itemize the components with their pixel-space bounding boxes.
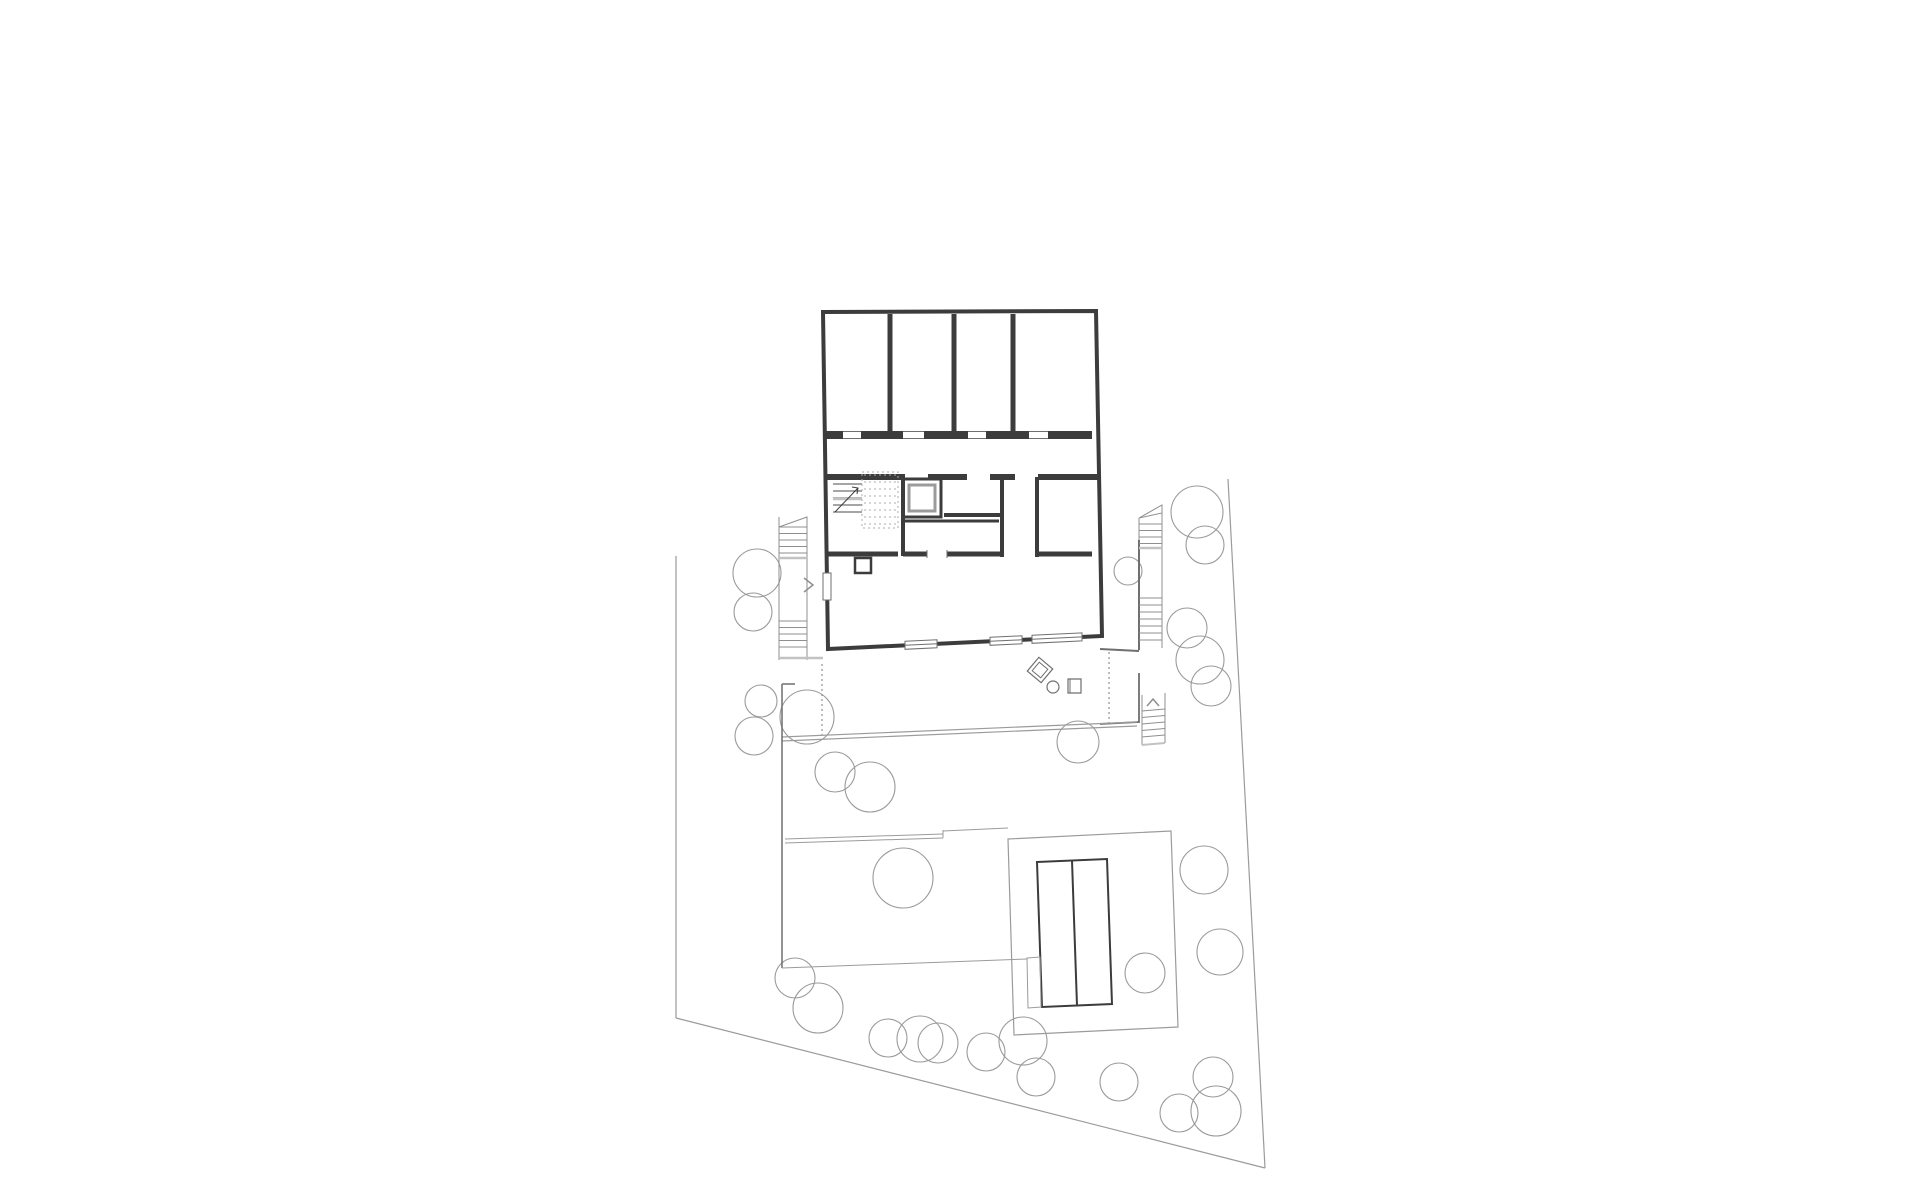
entry-direction-arrow	[804, 578, 813, 592]
tree-30	[1193, 1057, 1233, 1097]
garden-path-edge-3	[943, 828, 1008, 831]
column	[855, 558, 871, 573]
tree-4	[735, 717, 773, 755]
tree-8	[873, 848, 933, 908]
east-lower-stair-treads-3	[1142, 722, 1165, 724]
tree-7	[845, 762, 895, 812]
terrace-chair-round	[1047, 681, 1059, 693]
tree-11	[1171, 486, 1223, 538]
tree-29	[1191, 1086, 1241, 1136]
tree-17	[1197, 929, 1243, 975]
tree-2	[734, 593, 772, 631]
tree-20	[793, 983, 843, 1033]
terrace-edge-inner	[782, 726, 1137, 741]
east-lower-stair-treads-4	[1142, 729, 1165, 731]
tree-26	[1017, 1058, 1055, 1096]
site-plan-page	[0, 0, 1920, 1200]
tree-27	[1100, 1063, 1138, 1101]
east-lower-stair-treads-2	[1142, 716, 1165, 718]
tree-28	[1160, 1094, 1198, 1132]
east-lower-stair-treads-5	[1142, 735, 1165, 737]
east-retaining-wall-cap	[1100, 649, 1139, 651]
east-lower-stair-treads-1	[1142, 709, 1165, 711]
tree-1	[733, 549, 781, 597]
east-lower-stair-band	[1142, 743, 1165, 745]
entrance-door	[823, 573, 831, 600]
tree-19	[775, 958, 815, 998]
plot-boundary-right	[1228, 479, 1265, 1168]
architectural-floor-plan-drawing	[0, 0, 1920, 1200]
terrace-table-inner	[1032, 662, 1048, 678]
tree-16	[1180, 846, 1228, 894]
tree-25	[999, 1017, 1047, 1065]
east-stair-ramp-top	[1139, 505, 1162, 518]
garage-side-slab	[1027, 957, 1041, 1008]
east-lower-retaining-wall	[1100, 673, 1139, 724]
terrace-edge-outer	[782, 722, 1137, 737]
tree-3	[745, 685, 777, 717]
tree-23	[918, 1023, 958, 1063]
west-stair-ramp-top	[779, 517, 807, 527]
tree-6	[815, 752, 855, 792]
terrace-table	[1027, 657, 1052, 682]
tree-13	[1167, 608, 1207, 648]
tree-12	[1186, 526, 1224, 564]
tree-18	[1125, 953, 1165, 993]
up-direction-arrow	[1147, 699, 1159, 706]
stair-headroom-outline	[862, 472, 898, 528]
elevator-car-inner	[909, 485, 935, 511]
lawn-lower-edge	[782, 959, 1027, 968]
tree-15	[1191, 666, 1231, 706]
tree-10	[1114, 557, 1142, 585]
